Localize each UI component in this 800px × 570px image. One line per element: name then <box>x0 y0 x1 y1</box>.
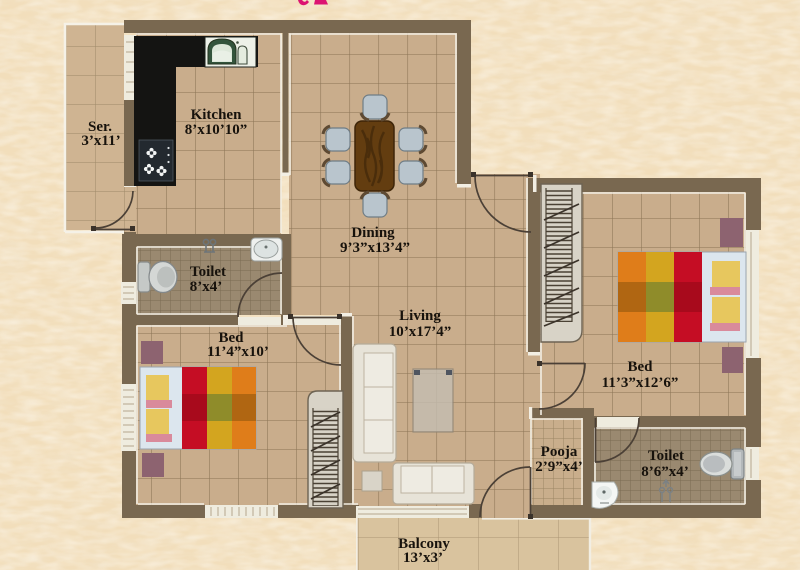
svg-text:13’x3’: 13’x3’ <box>403 550 443 566</box>
svg-text:Living: Living <box>399 308 441 324</box>
svg-text:11’3”x12’6”: 11’3”x12’6” <box>602 375 679 391</box>
svg-text:2’9”x4’: 2’9”x4’ <box>535 459 583 475</box>
svg-text:Bed: Bed <box>627 359 653 375</box>
svg-text:10’x17’4”: 10’x17’4” <box>389 324 452 340</box>
svg-text:3’x11’: 3’x11’ <box>81 133 120 149</box>
svg-text:Dining: Dining <box>351 225 395 241</box>
svg-text:11’4”x10’: 11’4”x10’ <box>207 344 269 360</box>
svg-text:9’3”x13’4”: 9’3”x13’4” <box>340 240 410 256</box>
svg-text:8’x4’: 8’x4’ <box>190 279 223 295</box>
svg-text:8’x10’10”: 8’x10’10” <box>185 122 248 138</box>
svg-text:Pooja: Pooja <box>541 444 578 460</box>
svg-text:8’6”x4’: 8’6”x4’ <box>641 464 689 480</box>
svg-text:Toilet: Toilet <box>190 264 226 280</box>
svg-text:Kitchen: Kitchen <box>191 107 242 123</box>
svg-text:Toilet: Toilet <box>648 448 684 464</box>
